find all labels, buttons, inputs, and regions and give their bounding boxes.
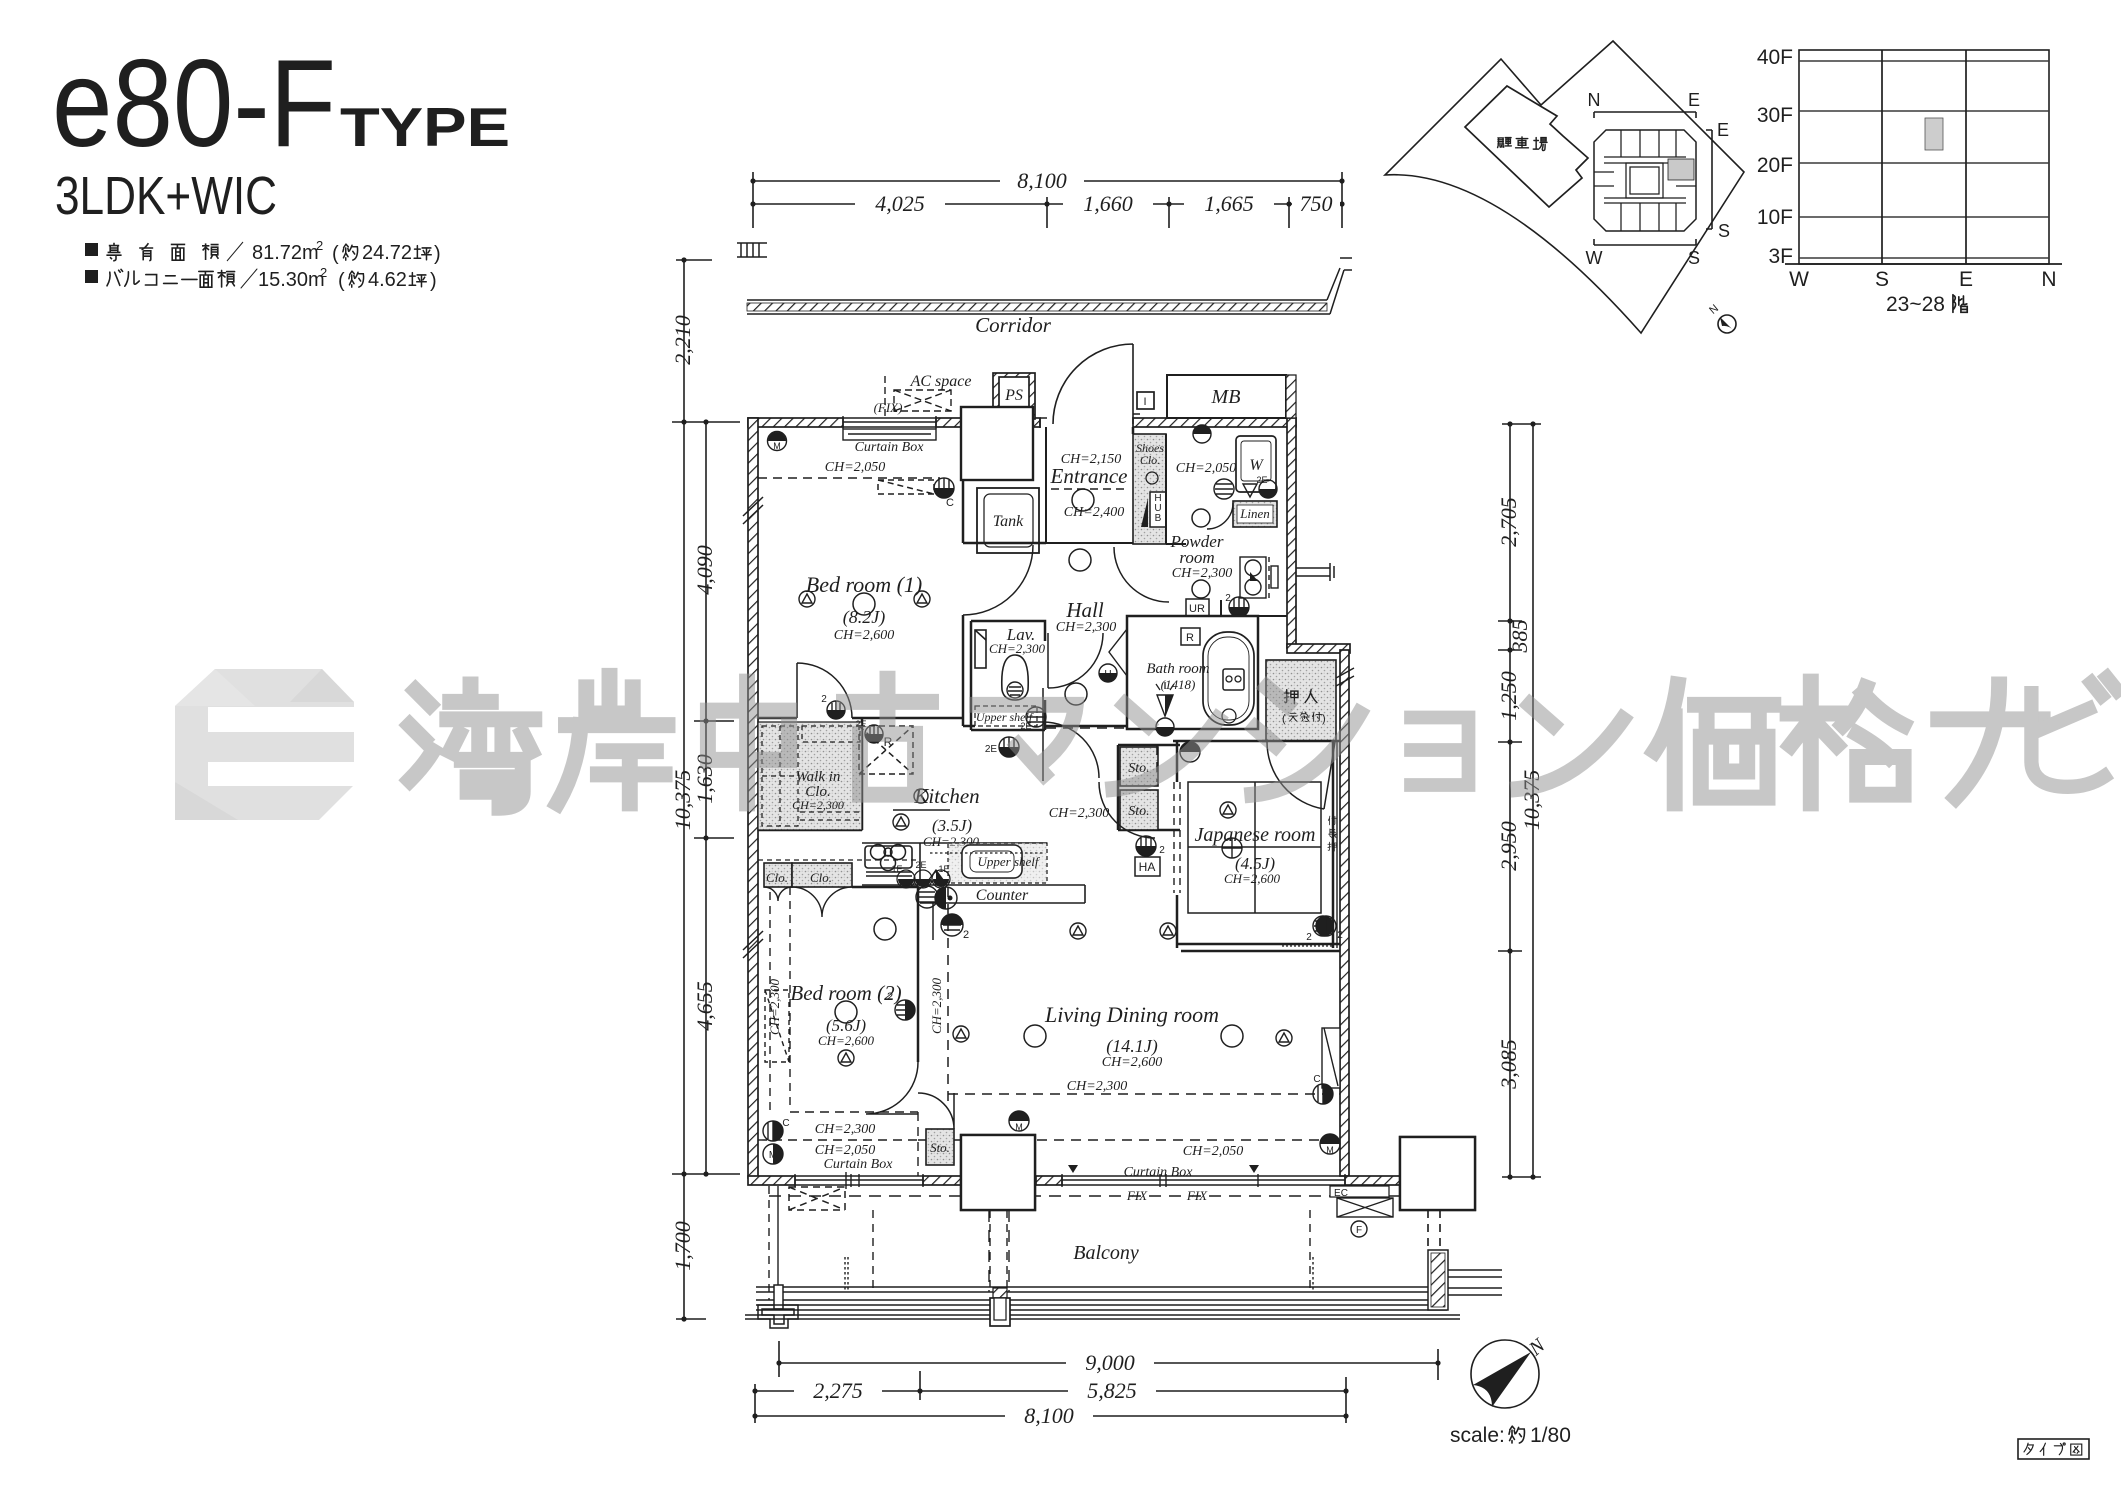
svg-text:10F: 10F	[1757, 206, 1793, 229]
svg-text:W: W	[1789, 268, 1809, 291]
svg-text:1/80: 1/80	[1530, 1424, 1571, 1447]
svg-text:Upper shelf: Upper shelf	[977, 854, 1040, 869]
svg-text:4.62: 4.62	[368, 269, 407, 291]
svg-text:): )	[1322, 713, 1326, 725]
svg-text:Entrance: Entrance	[1050, 464, 1128, 488]
svg-text:M: M	[1326, 1145, 1334, 1155]
svg-text:B: B	[1155, 513, 1162, 524]
svg-text:Linen: Linen	[1239, 506, 1270, 521]
svg-text:CH=2,600: CH=2,600	[818, 1033, 875, 1048]
svg-text:1,250: 1,250	[1496, 671, 1521, 721]
svg-text:CH=2,600: CH=2,600	[1102, 1055, 1162, 1070]
svg-text:M: M	[769, 1150, 777, 1161]
svg-text:(3.5J): (3.5J)	[932, 816, 972, 835]
svg-text:CH=2,300: CH=2,300	[929, 977, 944, 1034]
svg-text:2: 2	[1225, 593, 1231, 604]
svg-text:(14.1J): (14.1J)	[1106, 1036, 1157, 1057]
svg-text:4,025: 4,025	[875, 191, 925, 216]
svg-text:Corridor: Corridor	[975, 313, 1052, 337]
svg-text:2: 2	[821, 694, 827, 705]
svg-text:8,100: 8,100	[1024, 1403, 1074, 1428]
svg-text:C: C	[1313, 1074, 1320, 1085]
svg-text:CH=2,600: CH=2,600	[1224, 871, 1281, 886]
svg-text:Hall: Hall	[1065, 598, 1104, 622]
svg-text:4,090: 4,090	[692, 545, 717, 595]
svg-text:2E: 2E	[915, 860, 926, 870]
svg-text:81.72m: 81.72m	[252, 242, 319, 264]
svg-text:W: W	[1249, 457, 1264, 474]
svg-text:23~28: 23~28	[1886, 293, 1945, 316]
svg-text:room: room	[1179, 548, 1214, 567]
svg-text:2: 2	[320, 265, 327, 280]
svg-text:Bath room: Bath room	[1146, 661, 1209, 677]
svg-text:CH=2,300: CH=2,300	[1067, 1079, 1127, 1094]
svg-text:e80-F: e80-F	[52, 35, 336, 173]
svg-text:3F: 3F	[1768, 245, 1793, 268]
svg-text:Curtain Box: Curtain Box	[1124, 1165, 1194, 1180]
svg-text:2,210: 2,210	[670, 315, 695, 365]
svg-text:2: 2	[1159, 845, 1165, 856]
svg-text:2E: 2E	[1020, 721, 1031, 731]
svg-text:): )	[430, 270, 437, 292]
svg-text:CH=2,600: CH=2,600	[834, 628, 894, 643]
svg-text:C: C	[782, 1118, 789, 1129]
svg-text:1,660: 1,660	[1083, 191, 1133, 216]
svg-text:Counter: Counter	[976, 887, 1029, 904]
svg-text:Sto.: Sto.	[930, 1140, 950, 1155]
svg-text:1,665: 1,665	[1204, 191, 1254, 216]
svg-text:I: I	[1143, 396, 1146, 408]
svg-text:2: 2	[1337, 930, 1343, 941]
svg-text:MB: MB	[1211, 386, 1241, 408]
svg-text:N: N	[1588, 90, 1601, 110]
svg-text:Clo.: Clo.	[810, 870, 832, 885]
svg-text:2,950: 2,950	[1496, 821, 1521, 871]
svg-text:E: E	[1959, 268, 1973, 291]
svg-text:9,000: 9,000	[1085, 1350, 1135, 1375]
svg-text:2,705: 2,705	[1496, 497, 1521, 547]
svg-text:CH=2,300: CH=2,300	[815, 1122, 875, 1137]
svg-text:E: E	[1688, 90, 1700, 110]
svg-text:R: R	[1186, 632, 1194, 644]
svg-text:): )	[434, 243, 441, 265]
svg-text:30F: 30F	[1757, 104, 1793, 127]
svg-text:Clo.: Clo.	[1140, 453, 1160, 467]
svg-text:C: C	[946, 497, 954, 509]
svg-text:2: 2	[1306, 932, 1312, 943]
svg-text:2: 2	[963, 929, 969, 941]
svg-text:M: M	[1015, 1122, 1023, 1132]
svg-text:Sto.: Sto.	[1128, 804, 1149, 819]
svg-text:(: (	[1282, 713, 1286, 725]
svg-text:E: E	[1717, 120, 1729, 140]
svg-text:CH=2,300: CH=2,300	[1049, 806, 1109, 821]
svg-text:3,085: 3,085	[1496, 1039, 1521, 1090]
svg-text:CH=2,050: CH=2,050	[825, 460, 885, 475]
svg-text:W: W	[1586, 248, 1603, 268]
svg-text:Kitchen: Kitchen	[913, 784, 979, 808]
svg-text:5,825: 5,825	[1087, 1378, 1137, 1403]
svg-text:CH=2,050: CH=2,050	[1176, 461, 1236, 476]
svg-text:H: H	[1104, 669, 1111, 680]
svg-text:385: 385	[1507, 620, 1532, 654]
svg-text:TYPE: TYPE	[340, 96, 510, 158]
svg-text:CH=2,300: CH=2,300	[1056, 620, 1116, 635]
svg-text:1E: 1E	[891, 864, 902, 874]
svg-text:AC space: AC space	[910, 373, 972, 390]
svg-text:(1418): (1418)	[1161, 677, 1196, 692]
svg-text:2: 2	[316, 238, 323, 253]
svg-text:Curtain Box: Curtain Box	[855, 440, 925, 455]
svg-text:S: S	[1875, 268, 1889, 291]
svg-text:4,655: 4,655	[692, 981, 717, 1031]
svg-text:3LDK+WIC: 3LDK+WIC	[55, 166, 277, 226]
svg-text:M: M	[773, 441, 781, 451]
svg-text:S: S	[1688, 248, 1700, 268]
svg-text:scale:: scale:	[1450, 1424, 1505, 1447]
svg-text:CH=2,050: CH=2,050	[815, 1143, 875, 1158]
svg-text:N: N	[2041, 268, 2056, 291]
svg-text:40F: 40F	[1757, 46, 1793, 69]
svg-text:CH=2,050: CH=2,050	[1183, 1144, 1243, 1159]
svg-text:8,100: 8,100	[1017, 168, 1067, 193]
svg-text:S: S	[1718, 221, 1730, 241]
svg-text:(: (	[332, 243, 339, 265]
svg-text:24.72: 24.72	[362, 242, 412, 264]
svg-text:Balcony: Balcony	[1073, 1242, 1139, 1264]
svg-text:F: F	[1356, 1225, 1362, 1236]
svg-text:20F: 20F	[1757, 154, 1793, 177]
svg-text:CH=2,300: CH=2,300	[767, 978, 782, 1035]
svg-text:Living Dining room: Living Dining room	[1044, 1002, 1219, 1027]
svg-text:2,275: 2,275	[813, 1378, 863, 1403]
svg-text:HA: HA	[1139, 860, 1156, 874]
svg-text:(: (	[338, 270, 345, 292]
svg-text:2E: 2E	[985, 744, 998, 755]
svg-text:750: 750	[1300, 191, 1333, 216]
svg-text:(8.2J): (8.2J)	[843, 607, 885, 628]
svg-text:CH=2,300: CH=2,300	[792, 798, 844, 812]
svg-text:CH=2,400: CH=2,400	[1064, 505, 1124, 520]
svg-text:Tank: Tank	[993, 513, 1024, 530]
svg-text:CH=2,300: CH=2,300	[989, 641, 1046, 656]
svg-text:1,700: 1,700	[670, 1221, 695, 1271]
svg-text:Japanese room: Japanese room	[1195, 824, 1316, 846]
svg-text:Curtain Box: Curtain Box	[824, 1157, 894, 1172]
svg-text:2: 2	[887, 991, 893, 1003]
svg-text:PS: PS	[1004, 387, 1023, 404]
svg-text:15.30m: 15.30m	[258, 269, 325, 291]
svg-text:(FIX): (FIX)	[874, 400, 903, 415]
svg-text:CH=2,300: CH=2,300	[1172, 566, 1232, 581]
svg-text:Walk in: Walk in	[796, 769, 841, 785]
svg-text:Clo.: Clo.	[766, 870, 788, 885]
svg-text:UR: UR	[1189, 603, 1205, 615]
svg-text:1E: 1E	[938, 864, 949, 874]
